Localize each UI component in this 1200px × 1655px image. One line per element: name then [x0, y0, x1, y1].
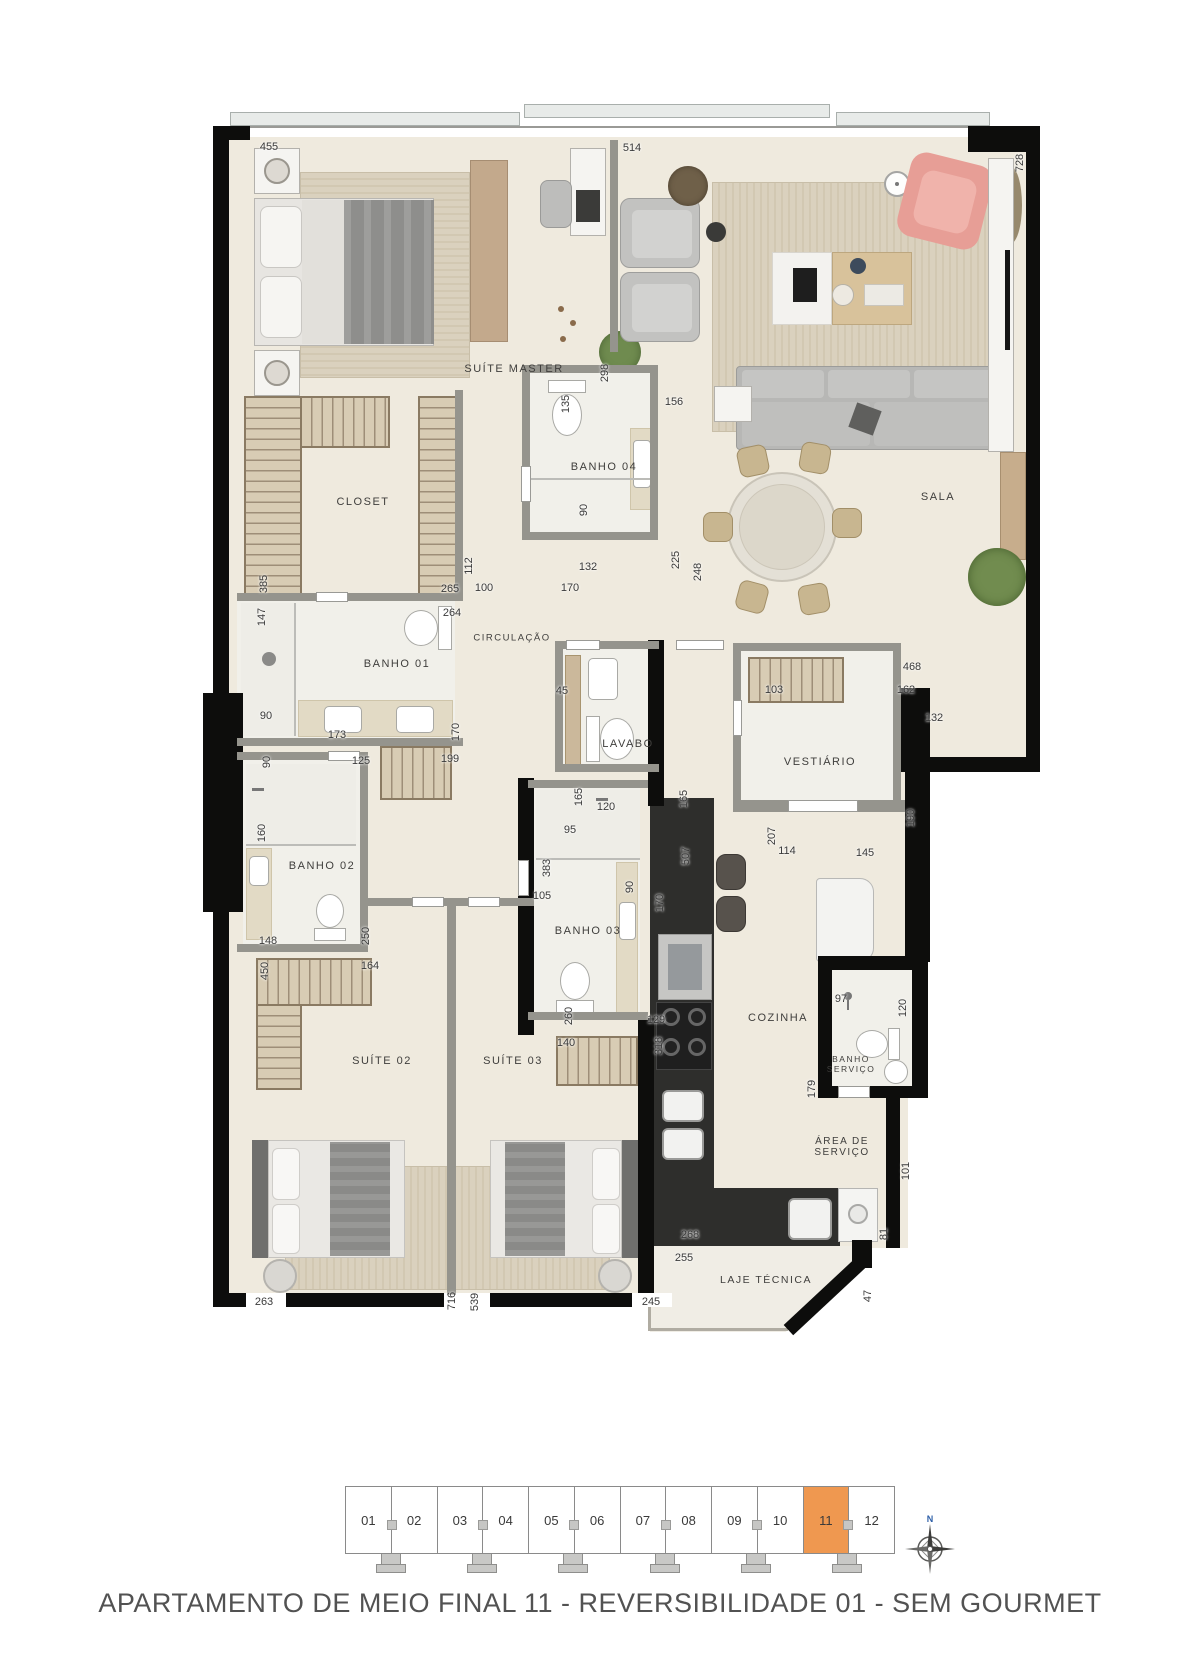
- partition-vestiario-top: [733, 643, 901, 651]
- pillow: [592, 1148, 620, 1200]
- keyplan-unit-01: 01: [346, 1487, 392, 1553]
- side-table: [714, 386, 752, 422]
- stool: [716, 854, 746, 890]
- wardrobe: [300, 396, 390, 448]
- room-label-sala: SALA: [921, 491, 955, 503]
- dimension-label: 264: [443, 607, 461, 619]
- bed-headboard: [622, 1140, 638, 1258]
- keyplan-unit-09: 09: [712, 1487, 758, 1553]
- dimension-label: 255: [675, 1252, 693, 1264]
- clock-center: [895, 182, 899, 186]
- toilet: [316, 894, 344, 928]
- sink: [396, 706, 434, 733]
- sink: [619, 902, 636, 940]
- tray-icon: [832, 284, 854, 306]
- door-vestiario: [733, 700, 742, 736]
- fridge: [816, 878, 874, 962]
- shower-glass: [294, 603, 296, 736]
- room-label-vestiario: VESTIÁRIO: [784, 756, 856, 768]
- partition-banho04-bottom: [522, 532, 658, 540]
- door-suite02: [412, 897, 444, 907]
- book-icon: [793, 268, 817, 302]
- room-label-laje-tecnica: LAJE TÉCNICA: [720, 1274, 812, 1286]
- wall-suite03-right: [638, 1018, 654, 1295]
- dimension-label: 298: [599, 364, 611, 382]
- dimension-label: 199: [441, 753, 459, 765]
- toilet-tank: [314, 928, 346, 941]
- keyplan-unit-04: 04: [483, 1487, 529, 1553]
- keyplan-notch-icon: [661, 1520, 671, 1530]
- room-label-cozinha: COZINHA: [748, 1012, 808, 1024]
- door-banho04: [521, 466, 531, 502]
- partition-lavabo-left: [555, 641, 563, 772]
- keyplan-unit-12: 12: [849, 1487, 894, 1553]
- bed-headboard: [252, 1140, 268, 1258]
- wardrobe: [256, 1004, 302, 1090]
- wall-column-left: [203, 693, 243, 912]
- room-label-banho-servico: BANHO SERVIÇO: [827, 1054, 876, 1074]
- lavabo-cabinet: [565, 655, 581, 765]
- blanket: [344, 200, 434, 344]
- wall-laje-corner: [852, 1240, 872, 1268]
- laundry-sink: [788, 1198, 832, 1240]
- partition-vestiario-right: [893, 651, 901, 808]
- dimension-label: 728: [1014, 154, 1026, 172]
- dimension-label: 507: [680, 847, 692, 865]
- dimension-label: 156: [665, 396, 683, 408]
- desk-chair: [540, 180, 572, 228]
- toilet-tank: [888, 1028, 900, 1060]
- room-label-suite-02: SUÍTE 02: [352, 1055, 412, 1067]
- armchair-cushion: [632, 210, 692, 258]
- dimension-label: 148: [259, 935, 277, 947]
- dimension-label: 539: [469, 1293, 481, 1311]
- wall-right-sala: [1026, 150, 1040, 772]
- dimension-label: 160: [256, 824, 268, 842]
- blanket: [505, 1142, 565, 1256]
- dimension-label: 140: [557, 1037, 575, 1049]
- dimension-label: 245: [642, 1296, 660, 1308]
- bench: [470, 160, 508, 342]
- shower-glass: [530, 478, 652, 480]
- dimension-label: 81: [878, 1228, 890, 1240]
- dining-table-top: [739, 484, 825, 570]
- laptop-icon: [576, 190, 600, 222]
- window: [524, 104, 830, 118]
- wardrobe: [748, 657, 844, 703]
- window: [230, 112, 520, 126]
- door-entry: [788, 800, 858, 812]
- dimension-label: 248: [692, 563, 704, 581]
- lamp-icon: [264, 158, 290, 184]
- partition-banho02-right: [360, 752, 368, 948]
- sofa-cushion: [742, 370, 824, 398]
- keyplan-unit-03: 03: [438, 1487, 484, 1553]
- tv-icon: [1005, 250, 1010, 350]
- room-label-banho-03: BANHO 03: [555, 925, 621, 937]
- dimension-label: 112: [463, 557, 475, 575]
- burner-icon: [688, 1008, 706, 1026]
- keyplan-unit-06: 06: [575, 1487, 621, 1553]
- compass: N: [903, 1514, 957, 1574]
- drain-icon: [262, 652, 276, 666]
- dimension-label: 103: [765, 684, 783, 696]
- dimension-label: 145: [856, 847, 874, 859]
- dimension-label: 135: [560, 395, 572, 413]
- decor-art-icon: [558, 306, 564, 312]
- toilet: [404, 610, 438, 646]
- dimension-label: 100: [475, 582, 493, 594]
- kitchen-sink: [662, 1090, 704, 1122]
- plant: [968, 548, 1026, 606]
- dimension-label: 114: [778, 845, 796, 857]
- partition-closet-right: [455, 390, 463, 601]
- dimension-label: 225: [670, 551, 682, 569]
- partition-vestiario-bottom-b: [858, 800, 905, 812]
- dimension-label: 207: [766, 827, 778, 845]
- room-label-area-servico: ÁREA DE SERVIÇO: [814, 1136, 869, 1158]
- sink: [249, 856, 269, 886]
- pillow: [272, 1204, 300, 1254]
- bowl-icon: [850, 258, 866, 274]
- dimension-label: 120: [597, 801, 615, 813]
- dimension-label: 120: [897, 999, 909, 1017]
- door-banho-servico: [838, 1086, 870, 1098]
- pouf: [263, 1259, 297, 1293]
- floor-plan: SUÍTE MASTERSALACLOSETBANHO 04CIRCULAÇÃO…: [0, 0, 1200, 1400]
- keyplan-strip: 010203040506070809101112: [345, 1486, 895, 1554]
- dimension-label: 514: [623, 142, 641, 154]
- decor-art-icon: [560, 336, 566, 342]
- room-label-banho-01: BANHO 01: [364, 658, 430, 670]
- toilet: [560, 962, 590, 1000]
- dimension-label: 105: [533, 890, 551, 902]
- vase-icon: [706, 222, 726, 242]
- keyplan-notch-icon: [752, 1520, 762, 1530]
- dimension-label: 450: [259, 962, 271, 980]
- dimension-label: 147: [256, 608, 268, 626]
- dimension-label: 165: [678, 790, 690, 808]
- dimension-label: 129: [647, 1014, 665, 1026]
- dimension-label: 47: [862, 1290, 874, 1302]
- stool: [716, 896, 746, 932]
- dining-chair: [798, 441, 833, 476]
- caption: APARTAMENTO DE MEIO FINAL 11 - REVERSIBI…: [0, 1588, 1200, 1619]
- partition-lavabo-bottom: [555, 764, 659, 772]
- partition-vestiario-bottom-a: [733, 800, 788, 812]
- armchair-cushion: [632, 284, 692, 332]
- dining-chair: [797, 582, 832, 617]
- door-banho03: [518, 860, 529, 896]
- oven-glass: [668, 944, 702, 990]
- dimension-label: 95: [564, 824, 576, 836]
- keyplan-unit-05: 05: [529, 1487, 575, 1553]
- laje-edge-bottom: [650, 1328, 788, 1331]
- burner-icon: [688, 1038, 706, 1056]
- sink: [588, 658, 618, 700]
- dimension-label: 179: [806, 1080, 818, 1098]
- dimension-label: 173: [328, 729, 346, 741]
- sofa-cushion: [828, 370, 910, 398]
- kitchen-sink: [662, 1128, 704, 1160]
- room-label-suite-03: SUÍTE 03: [483, 1055, 543, 1067]
- dimension-label: 190: [905, 809, 917, 827]
- dimension-label: 260: [563, 1007, 575, 1025]
- room-label-lavabo: LAVABO: [602, 738, 653, 750]
- shower-floor: [536, 790, 640, 858]
- keyplan-notch-icon: [387, 1520, 397, 1530]
- dimension-label: 170: [561, 582, 579, 594]
- wall-corner-top-right: [968, 126, 1040, 152]
- dimension-label: 468: [903, 661, 921, 673]
- toilet-tank: [548, 380, 586, 393]
- washer-door-icon: [848, 1204, 868, 1224]
- wall-area-servico-right: [886, 1098, 900, 1248]
- dimension-label: 97: [835, 993, 847, 1005]
- lamp-icon: [264, 360, 290, 386]
- wall-banho03-left: [518, 778, 534, 1035]
- room-label-closet: CLOSET: [336, 496, 389, 508]
- wood-sideboard: [1000, 452, 1026, 560]
- dining-chair: [832, 508, 862, 538]
- partition-suite-master-sala: [610, 140, 618, 352]
- keyplan-unit-07: 07: [621, 1487, 667, 1553]
- decor-box: [864, 284, 904, 306]
- keyplan-notch-icon: [843, 1520, 853, 1530]
- pillow: [272, 1148, 300, 1200]
- door-lavabo: [566, 640, 600, 650]
- dimension-label: 125: [352, 755, 370, 767]
- tv-console: [988, 158, 1014, 452]
- dimension-label: 90: [261, 756, 273, 768]
- dimension-label: 268: [681, 1229, 699, 1241]
- dimension-label: 90: [578, 504, 590, 516]
- room-label-circulacao: CIRCULAÇÃO: [473, 633, 550, 644]
- room-label-banho-04: BANHO 04: [571, 461, 637, 473]
- dimension-label: 383: [541, 859, 553, 877]
- pillow: [260, 276, 302, 338]
- partition-banho04-right: [650, 365, 658, 540]
- bed-sheet: [302, 200, 344, 344]
- door-suite03: [468, 897, 500, 907]
- dimension-label: 132: [925, 712, 943, 724]
- keyplan-notch-icon: [569, 1520, 579, 1530]
- window: [836, 112, 990, 126]
- partition-banho03-bottom: [528, 1012, 648, 1020]
- dimension-label: 162: [897, 684, 915, 696]
- dimension-label: 318: [653, 1037, 665, 1055]
- page: { "meta":{"caption":"APARTAMENTO DE MEIO…: [0, 0, 1200, 1655]
- dimension-label: 250: [360, 927, 372, 945]
- partition-banho02-bottom: [237, 944, 368, 952]
- wardrobe: [244, 396, 302, 600]
- keyplan-unit-10: 10: [758, 1487, 804, 1553]
- shower-arm-icon: [847, 1000, 849, 1010]
- pouf: [598, 1259, 632, 1293]
- pillow: [592, 1204, 620, 1254]
- dimension-label: 90: [624, 881, 636, 893]
- sofa-seat: [874, 402, 1000, 446]
- room-label-suite-master: SUÍTE MASTER: [464, 363, 563, 375]
- dimension-label: 170: [450, 723, 462, 741]
- dimension-label: 170: [654, 894, 666, 912]
- dimension-label: 265: [441, 583, 459, 595]
- dimension-label: 385: [258, 575, 270, 593]
- partition-closet-banho01: [237, 593, 460, 601]
- keyplan-unit-02: 02: [392, 1487, 438, 1553]
- dimension-label: 716: [446, 1292, 458, 1310]
- dimension-label: 45: [556, 685, 568, 697]
- dimension-label: 101: [900, 1162, 912, 1180]
- toilet-tank: [586, 716, 600, 762]
- side-table: [668, 166, 708, 206]
- dimension-label: 90: [260, 710, 272, 722]
- decor-art-icon: [570, 320, 576, 326]
- partition-banho04-left: [522, 365, 530, 540]
- shower-handle-icon: [252, 788, 264, 791]
- keyplan-notch-icon: [478, 1520, 488, 1530]
- shower-glass: [246, 844, 356, 846]
- wardrobe: [256, 958, 372, 1006]
- dimension-label: 164: [361, 960, 379, 972]
- dimension-label: 165: [573, 788, 585, 806]
- door-kitchen-passage: [676, 640, 724, 650]
- partition-banho03-top: [528, 780, 648, 788]
- dimension-label: 263: [255, 1296, 273, 1308]
- door-banho01: [316, 592, 348, 602]
- partition-banho01-bottom: [237, 738, 463, 746]
- dimension-label: 455: [260, 141, 278, 153]
- dining-chair: [703, 512, 733, 542]
- room-label-banho-02: BANHO 02: [289, 860, 355, 872]
- partition-suites-divider: [447, 905, 456, 1295]
- compass-rose-icon: [903, 1522, 957, 1576]
- wall-right-mid: [905, 772, 930, 962]
- dimension-label: 132: [579, 561, 597, 573]
- round-sink: [884, 1060, 908, 1084]
- top-edge-line: [229, 126, 999, 128]
- blanket: [330, 1142, 390, 1256]
- wall-corner-top-left: [213, 126, 250, 140]
- wall-kitchen-top-left: [648, 640, 664, 806]
- wall-jog-vestiario: [901, 688, 930, 772]
- pillow: [260, 206, 302, 268]
- keyplan-unit-08: 08: [666, 1487, 712, 1553]
